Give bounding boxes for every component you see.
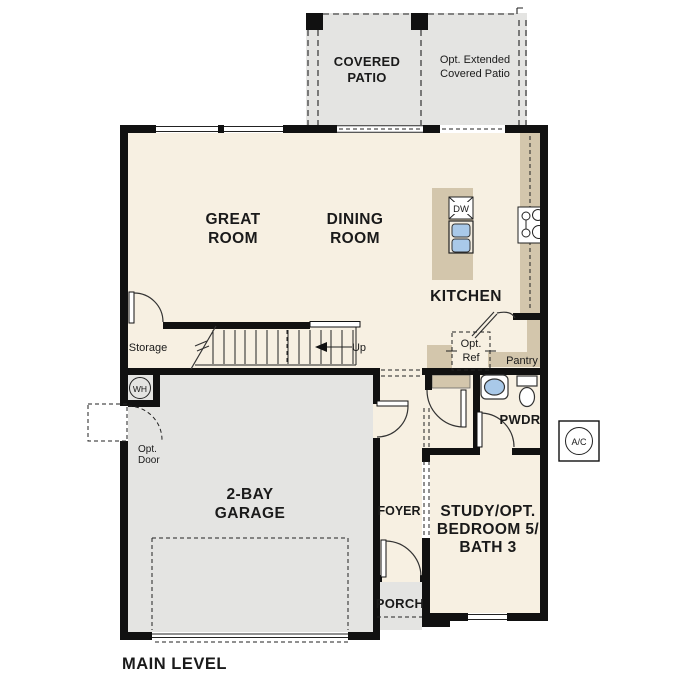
water-heater-label: WH	[133, 384, 147, 394]
foyer-label: FOYER	[377, 504, 420, 518]
covered-patio-label: COVERED	[334, 54, 400, 69]
toilet-tank	[517, 376, 537, 386]
patio-post-right	[411, 13, 428, 30]
powder-door-leaf	[477, 412, 482, 447]
up-label: Up	[352, 342, 366, 354]
study-label: STUDY/OPT.	[440, 503, 535, 520]
wall-study-top-left	[422, 448, 480, 455]
study-label: BATH 3	[459, 539, 516, 556]
dining-room-label: ROOM	[330, 230, 380, 247]
covered-patio-label: PATIO	[347, 70, 386, 85]
sink-basin-top	[452, 224, 470, 237]
stair-rail	[310, 322, 360, 328]
garage-label: GARAGE	[215, 505, 285, 522]
plan-title: MAIN LEVEL	[122, 655, 227, 673]
garage-entry-opening	[373, 404, 380, 438]
wall-closet-jamb	[425, 375, 432, 390]
floor-plan-page: COVERED PATIO Opt. Extended Covered Pati…	[0, 0, 687, 687]
porch-step	[422, 613, 450, 627]
garage-label: 2-BAY	[226, 486, 273, 503]
dining-room-label: DINING	[327, 211, 384, 228]
wall-garage-top	[120, 368, 380, 375]
garage-entry-door-leaf	[377, 401, 408, 406]
pantry-label: Pantry	[506, 355, 538, 367]
coat-closet-shelf	[432, 375, 470, 388]
wall-powder-top	[422, 368, 548, 375]
hall-counter	[427, 345, 452, 368]
wall-study-left-stub	[422, 448, 430, 462]
porch-label: PORCH	[376, 596, 424, 611]
great-room-label: GREAT	[205, 211, 260, 228]
wall-pantry-stub	[513, 313, 540, 320]
sink-basin-bottom	[452, 239, 470, 252]
kitchen-label: KITCHEN	[430, 288, 502, 305]
great-room-label: ROOM	[208, 230, 258, 247]
patio-post-left	[306, 13, 323, 30]
opt-door-label: Door	[138, 455, 160, 466]
front-door-opening	[382, 575, 420, 582]
wall-stairs-top	[163, 322, 310, 329]
wall-left-exterior	[120, 125, 128, 640]
study-label: BEDROOM 5/	[437, 521, 539, 538]
garage-door-opening	[152, 632, 348, 640]
pantry-shelf-vertical	[527, 320, 540, 353]
opt-ref-label: Opt.	[461, 338, 482, 350]
wall-study-top-right	[512, 448, 548, 455]
opt-door-label: Opt.	[138, 444, 157, 455]
storage-door-leaf	[129, 292, 134, 323]
garage-floor	[128, 375, 373, 632]
wall-wh-bottom	[128, 400, 160, 407]
floor-plan: COVERED PATIO Opt. Extended Covered Pati…	[0, 0, 687, 687]
front-door-leaf	[381, 540, 386, 577]
ac-label: A/C	[571, 437, 587, 447]
extended-patio-label: Opt. Extended	[440, 54, 510, 66]
powder-label: PWDR	[500, 412, 541, 427]
extended-patio-label: Covered Patio	[440, 68, 510, 80]
closet-door-leaf	[461, 390, 466, 427]
dishwasher-label: DW	[453, 204, 469, 215]
toilet-bowl	[520, 388, 535, 407]
opt-ref-label: Ref	[462, 352, 480, 364]
powder-sink-basin	[485, 379, 505, 395]
storage-label: Storage	[129, 342, 168, 354]
